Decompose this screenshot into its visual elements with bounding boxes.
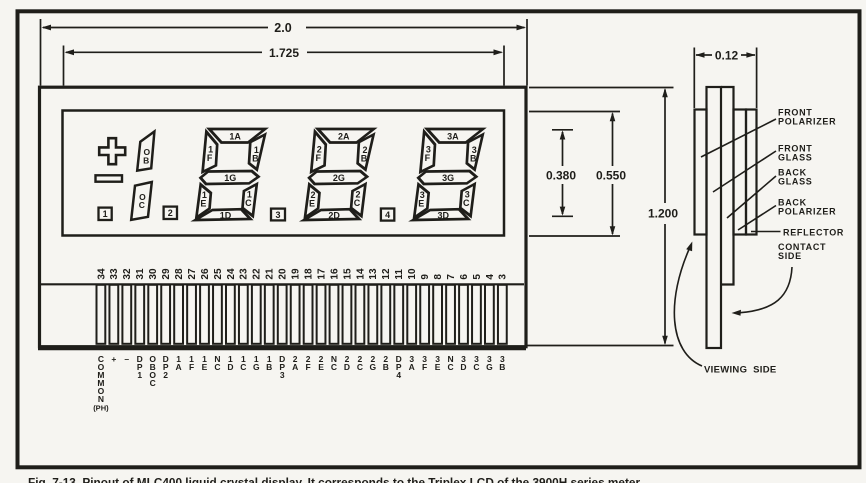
svg-text:17: 17 (316, 268, 327, 280)
svg-text:15: 15 (342, 268, 353, 280)
svg-text:22: 22 (252, 268, 263, 280)
svg-text:D: D (227, 362, 233, 372)
svg-text:C: C (447, 362, 453, 372)
svg-text:REFLECTOR: REFLECTOR (783, 228, 844, 238)
svg-text:F: F (189, 362, 194, 372)
svg-text:6: 6 (459, 274, 470, 280)
svg-text:18: 18 (304, 268, 315, 280)
svg-text:4: 4 (396, 370, 401, 380)
svg-text:1: 1 (137, 370, 142, 380)
svg-text:E: E (200, 198, 206, 208)
svg-text:23: 23 (239, 268, 250, 280)
svg-text:E: E (318, 362, 324, 372)
svg-text:0.550: 0.550 (596, 169, 626, 183)
svg-text:A: A (409, 362, 415, 372)
svg-text:10: 10 (407, 268, 418, 280)
svg-text:1: 1 (103, 209, 108, 219)
svg-text:28: 28 (174, 268, 185, 280)
svg-text:GLASS: GLASS (778, 177, 813, 187)
svg-text:20: 20 (278, 268, 289, 280)
svg-text:B: B (470, 153, 477, 163)
svg-text:1D: 1D (220, 211, 232, 221)
svg-text:+: + (111, 354, 116, 364)
svg-text:C: C (150, 378, 156, 388)
svg-text:2A: 2A (338, 131, 350, 141)
svg-text:B: B (383, 362, 389, 372)
svg-text:30: 30 (148, 268, 159, 280)
svg-text:B: B (252, 153, 259, 163)
svg-text:3A: 3A (447, 131, 459, 141)
svg-text:9: 9 (420, 274, 431, 280)
svg-text:26: 26 (200, 268, 211, 280)
svg-text:G: G (253, 362, 260, 372)
svg-text:2D: 2D (328, 211, 340, 221)
svg-text:C: C (473, 362, 479, 372)
svg-text:27: 27 (187, 268, 198, 280)
svg-text:24: 24 (226, 268, 237, 280)
svg-text:2.0: 2.0 (274, 21, 291, 35)
svg-text:A: A (176, 362, 182, 372)
svg-text:E: E (202, 362, 208, 372)
svg-text:–: – (124, 354, 129, 364)
svg-text:13: 13 (368, 268, 379, 280)
svg-text:F: F (425, 153, 431, 163)
svg-text:8: 8 (433, 274, 444, 280)
svg-text:E: E (309, 198, 315, 208)
svg-text:1.200: 1.200 (648, 207, 678, 221)
svg-text:19: 19 (291, 268, 302, 280)
svg-text:E: E (418, 198, 424, 208)
svg-text:3: 3 (280, 370, 285, 380)
svg-text:2G: 2G (333, 173, 345, 183)
svg-text:14: 14 (355, 268, 366, 280)
svg-text:C: C (245, 198, 252, 208)
svg-text:0.380: 0.380 (546, 169, 576, 183)
svg-text:POLARIZER: POLARIZER (778, 117, 836, 127)
svg-text:34: 34 (96, 268, 107, 280)
svg-text:25: 25 (213, 268, 224, 280)
svg-text:11: 11 (394, 269, 405, 280)
svg-text:3: 3 (498, 274, 509, 280)
svg-text:29: 29 (161, 268, 172, 280)
svg-text:GLASS: GLASS (778, 153, 813, 163)
svg-text:G: G (370, 362, 377, 372)
svg-text:D: D (460, 362, 466, 372)
svg-text:VIEWING SIDE: VIEWING SIDE (704, 365, 777, 376)
svg-text:F: F (207, 153, 213, 163)
svg-text:B: B (499, 362, 505, 372)
svg-text:C: C (463, 198, 470, 208)
svg-text:4: 4 (485, 274, 496, 280)
svg-text:B: B (143, 156, 149, 166)
svg-text:3G: 3G (442, 173, 454, 183)
svg-text:N: N (98, 394, 104, 404)
svg-text:(PH): (PH) (93, 404, 109, 413)
svg-text:SIDE: SIDE (778, 251, 802, 261)
svg-text:A: A (292, 362, 298, 372)
svg-text:C: C (331, 362, 337, 372)
svg-text:C: C (357, 362, 363, 372)
svg-text:16: 16 (329, 268, 340, 280)
svg-text:POLARIZER: POLARIZER (778, 206, 836, 216)
svg-text:C: C (139, 200, 145, 210)
svg-text:F: F (305, 362, 310, 372)
svg-text:31: 31 (135, 268, 146, 280)
svg-text:D: D (344, 362, 350, 372)
svg-text:1A: 1A (229, 131, 241, 141)
svg-text:F: F (422, 362, 427, 372)
svg-text:2: 2 (163, 370, 168, 380)
svg-text:4: 4 (385, 210, 390, 220)
svg-text:B: B (266, 362, 272, 372)
svg-text:F: F (315, 153, 321, 163)
svg-text:33: 33 (109, 268, 120, 280)
svg-text:1G: 1G (224, 173, 236, 183)
svg-text:C: C (240, 362, 246, 372)
svg-text:12: 12 (381, 268, 392, 280)
svg-text:G: G (486, 362, 493, 372)
svg-text:32: 32 (122, 268, 133, 280)
svg-text:C: C (354, 198, 361, 208)
svg-text:3D: 3D (438, 211, 450, 221)
svg-text:21: 21 (265, 268, 276, 280)
svg-text:Fig. 7-13. Pinout of MLC400 li: Fig. 7-13. Pinout of MLC400 liquid cryst… (28, 476, 643, 483)
svg-text:C: C (214, 362, 220, 372)
svg-text:1.725: 1.725 (269, 46, 299, 60)
svg-text:B: B (361, 153, 368, 163)
svg-text:2: 2 (168, 208, 173, 218)
svg-text:3: 3 (275, 210, 280, 220)
svg-text:0.12: 0.12 (715, 49, 739, 63)
svg-text:E: E (435, 362, 441, 372)
svg-text:7: 7 (446, 274, 457, 280)
svg-text:5: 5 (472, 274, 483, 280)
